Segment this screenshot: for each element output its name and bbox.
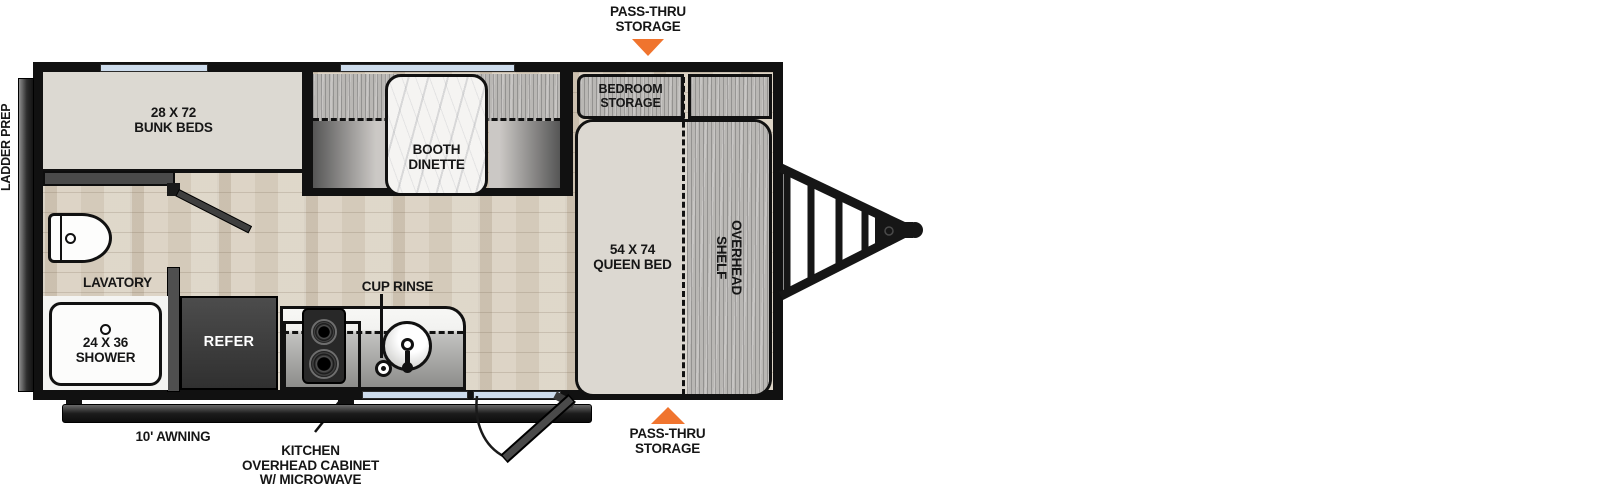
kitchen-ohc-line3: W/ MICROWAVE (238, 473, 383, 484)
queen-bed-label-line1: 54 X 74 (593, 243, 671, 258)
shower-label-line2: SHOWER (76, 351, 136, 366)
stove-burner-icon (311, 319, 337, 345)
dinette-wall-left (302, 72, 313, 195)
overhead-shelf-label-line1: OVERHEAD (728, 221, 743, 296)
pass-thru-bottom-callout: PASS-THRU STORAGE (610, 407, 725, 456)
trailer-tongue-hitch (779, 156, 934, 306)
bed-divider-dashed-line (682, 77, 685, 395)
shower-pan: 24 X 36 SHOWER (49, 302, 162, 386)
pass-thru-bottom-line2: STORAGE (610, 442, 725, 457)
kitchen-ohc-line2: OVERHEAD CABINET (238, 459, 383, 474)
ladder-prep-rail (18, 78, 34, 392)
stove-burner-icon (309, 349, 339, 379)
kitchen-ohc-line1: KITCHEN (238, 444, 383, 459)
awning-label: 10' AWNING (108, 430, 238, 445)
dinette-bench-right (489, 121, 560, 188)
bedroom-storage-right (688, 74, 772, 119)
toilet (48, 213, 112, 263)
bedroom-storage-label-line2: STORAGE (599, 97, 663, 111)
window-bunk (100, 64, 208, 72)
entry-door (448, 388, 608, 478)
refer-label: REFER (204, 335, 255, 351)
pass-thru-bottom-line1: PASS-THRU (610, 427, 725, 442)
bedroom-storage: BEDROOM STORAGE (577, 74, 684, 119)
pass-thru-top-line2: STORAGE (588, 20, 708, 35)
arrow-down-icon (632, 39, 664, 56)
bedroom-storage-label-line1: BEDROOM (599, 83, 663, 97)
shower-drain (100, 324, 111, 335)
faucet-knob (402, 362, 413, 373)
window-dinette (340, 64, 515, 72)
ladder-prep-label: LADDER PREP (0, 92, 17, 202)
booth-dinette-label-line1: BOOTH (408, 143, 464, 158)
arrow-up-icon (651, 407, 685, 424)
queen-bed-assembly: 54 X 74 QUEEN BED OVERHEAD SHELF (575, 119, 772, 397)
bunk-beds-label-line2: BUNK BEDS (134, 121, 212, 136)
toilet-tank-line (60, 216, 62, 260)
dinette-bench-left (313, 121, 387, 188)
booth-dinette-label-line2: DINETTE (408, 158, 464, 173)
shower-label-line1: 24 X 36 (76, 336, 136, 351)
cup-rinse-dot (381, 366, 386, 371)
booth-dinette-table: BOOTH DINETTE (385, 74, 488, 196)
kitchen-ohc-callout: KITCHEN OVERHEAD CABINET W/ MICROWAVE (238, 444, 383, 484)
bedroom-wall (560, 72, 573, 196)
stove (302, 308, 346, 384)
bath-wall (43, 171, 175, 186)
faucet-base (401, 338, 414, 351)
pass-thru-top-line1: PASS-THRU (588, 5, 708, 20)
queen-bed-label-line2: QUEEN BED (593, 258, 671, 273)
overhead-shelf: OVERHEAD SHELF (687, 122, 769, 394)
pass-thru-top-callout: PASS-THRU STORAGE (588, 5, 708, 56)
refrigerator: REFER (180, 296, 278, 390)
toilet-flush (65, 233, 76, 244)
queen-bed: 54 X 74 QUEEN BED (578, 122, 687, 394)
bath-kitchen-wall (167, 267, 180, 392)
bunk-beds-label-line1: 28 X 72 (134, 106, 212, 121)
bunk-beds: 28 X 72 BUNK BEDS (43, 72, 304, 173)
cup-rinse-fixture (375, 360, 392, 377)
overhead-shelf-label-line2: SHELF (713, 221, 728, 296)
floorplan-canvas: PASS-THRU STORAGE 28 X 72 BUNK BEDS OHC … (0, 0, 1600, 484)
lavatory-label: LAVATORY (70, 276, 165, 291)
cup-rinse-label: CUP RINSE (350, 280, 445, 295)
